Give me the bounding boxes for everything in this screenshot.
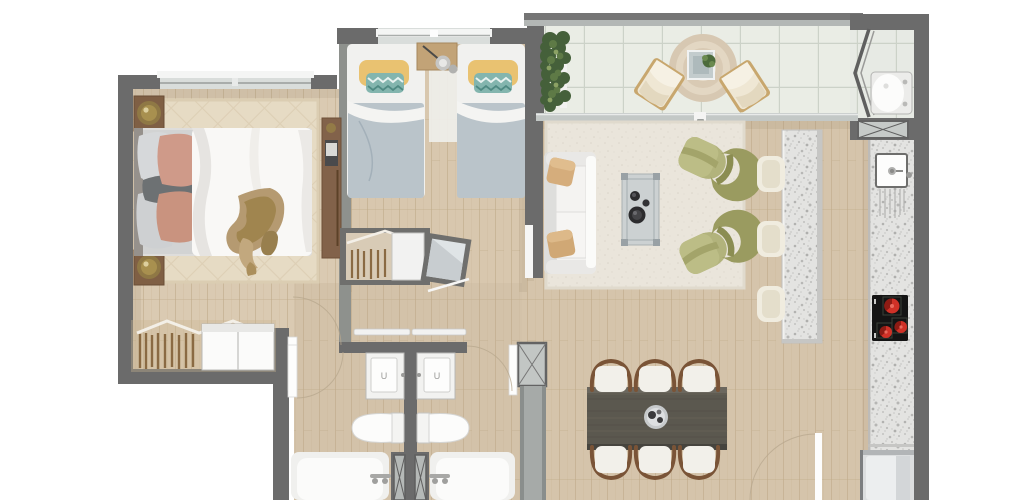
svg-text:U: U (381, 371, 388, 381)
svg-text:U: U (434, 371, 441, 381)
